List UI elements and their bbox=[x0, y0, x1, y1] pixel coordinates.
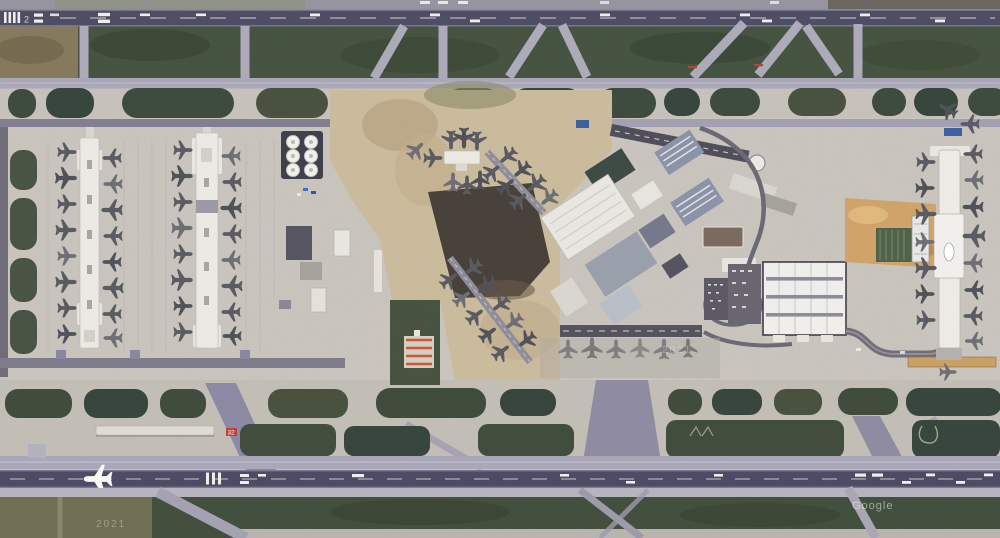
satellite-image: 2 bbox=[0, 0, 1000, 538]
grain-overlay bbox=[0, 0, 1000, 538]
satellite-map-canvas[interactable]: 2 bbox=[0, 0, 1000, 538]
